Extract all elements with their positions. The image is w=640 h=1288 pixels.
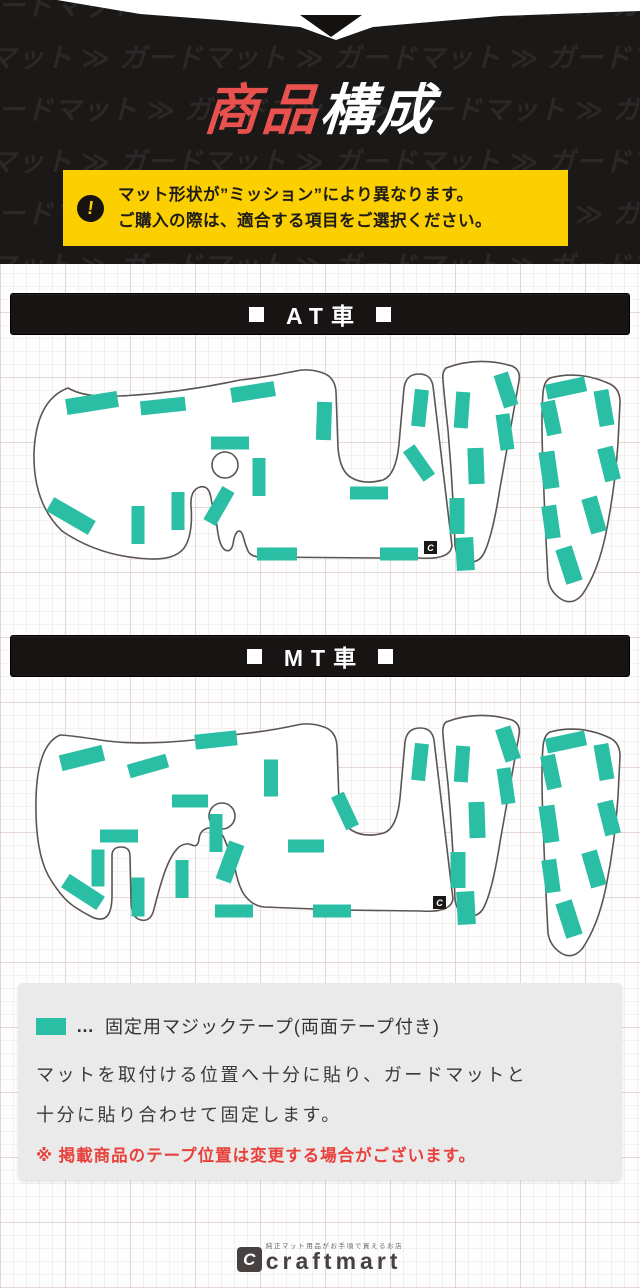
mat-hole	[212, 452, 238, 478]
section-label-at: AT車	[286, 297, 362, 331]
velcro-tape-marker	[450, 498, 465, 534]
legend-box: … 固定用マジックテープ(両面テープ付き) マットを取付ける位置へ十分に貼り、ガ…	[18, 983, 622, 1180]
velcro-tape-marker	[264, 760, 278, 797]
velcro-tape-marker	[172, 492, 185, 530]
section-label-mt: MT車	[284, 639, 364, 673]
velcro-tape-marker	[380, 548, 418, 561]
legend-dots: …	[76, 1016, 95, 1037]
tape-swatch	[36, 1018, 66, 1035]
at-mat-diagram: C	[0, 348, 640, 614]
footer: C 純正マット用品がお手頃で買えるお店 craftmart	[0, 1240, 640, 1272]
velcro-tape-marker	[172, 795, 208, 808]
velcro-tape-marker	[316, 402, 332, 441]
legend-key-text: 固定用マジックテープ(両面テープ付き)	[105, 1013, 440, 1039]
velcro-tape-marker	[132, 506, 145, 544]
velcro-tape-marker	[313, 905, 351, 918]
svg-text:C: C	[436, 898, 443, 908]
velcro-tape-marker	[454, 392, 470, 429]
legend-key-line: … 固定用マジックテープ(両面テープ付き)	[36, 1013, 604, 1039]
velcro-tape-marker	[456, 891, 476, 925]
square-marker-icon	[378, 649, 393, 664]
legend-disclaimer: ※ 掲載商品のテープ位置は変更する場合がございます。	[36, 1142, 604, 1166]
section-header-at: AT車	[10, 293, 630, 335]
velcro-tape-marker	[100, 830, 138, 843]
legend-description-line-2: 十分に貼り合わせて固定します。	[36, 1095, 604, 1135]
velcro-tape-marker	[257, 548, 297, 561]
svg-text:C: C	[427, 543, 434, 553]
velcro-tape-marker	[210, 814, 223, 852]
velcro-tape-marker	[468, 802, 485, 839]
velcro-tape-marker	[350, 487, 388, 500]
brand-name: craftmart	[266, 1251, 404, 1272]
velcro-tape-marker	[132, 878, 145, 917]
mt-mat-diagram: C	[0, 700, 640, 970]
notice-box: ! マット形状が”ミッション”により異なります。 ご購入の際は、適合する項目をご…	[63, 170, 568, 246]
velcro-tape-marker	[92, 850, 105, 887]
photo-strip-bottom-edge	[0, 0, 640, 46]
page-title-white-part: 構成	[318, 79, 438, 141]
notice-line-1: マット形状が”ミッション”により異なります。	[118, 182, 492, 208]
content-area: AT車 C MT車 C … 固定用マジックテープ(両面テープ付き) マットを取付…	[0, 264, 640, 1288]
square-marker-icon	[247, 649, 262, 664]
section-header-mt: MT車	[10, 635, 630, 677]
brand-mini-mark-icon: C	[433, 896, 446, 909]
square-marker-icon	[376, 307, 391, 322]
velcro-tape-marker	[288, 840, 324, 853]
velcro-tape-marker	[454, 746, 470, 783]
brand-mark-icon: C	[237, 1247, 262, 1272]
velcro-tape-marker	[211, 437, 249, 450]
velcro-tape-marker	[451, 852, 466, 888]
brand-logo: C 純正マット用品がお手頃で買えるお店 craftmart	[237, 1240, 404, 1272]
velcro-tape-marker	[253, 458, 266, 496]
square-marker-icon	[249, 307, 264, 322]
velcro-tape-marker	[467, 448, 484, 485]
product-infographic-page: ガードマット ≫ ガードマット ≫ ガードマット ≫ ガードマット ≫ ガードマ…	[0, 0, 640, 1288]
brand-mini-mark-icon: C	[424, 541, 437, 554]
velcro-tape-marker	[455, 537, 475, 571]
velcro-tape-marker	[176, 860, 189, 898]
exclamation-icon: !	[75, 193, 105, 223]
header-banner: ガードマット ≫ ガードマット ≫ ガードマット ≫ ガードマット ≫ ガードマ…	[0, 0, 640, 264]
notice-line-2: ご購入の際は、適合する項目をご選択ください。	[118, 208, 492, 234]
velcro-tape-marker	[215, 905, 253, 918]
page-title: 商品構成	[0, 78, 640, 142]
notice-text: マット形状が”ミッション”により異なります。 ご購入の際は、適合する項目をご選択…	[118, 182, 492, 234]
legend-description-line-1: マットを取付ける位置へ十分に貼り、ガードマットと	[36, 1055, 604, 1095]
page-title-red-part: 商品	[202, 79, 322, 141]
legend-description: マットを取付ける位置へ十分に貼り、ガードマットと 十分に貼り合わせて固定します。	[36, 1055, 604, 1135]
